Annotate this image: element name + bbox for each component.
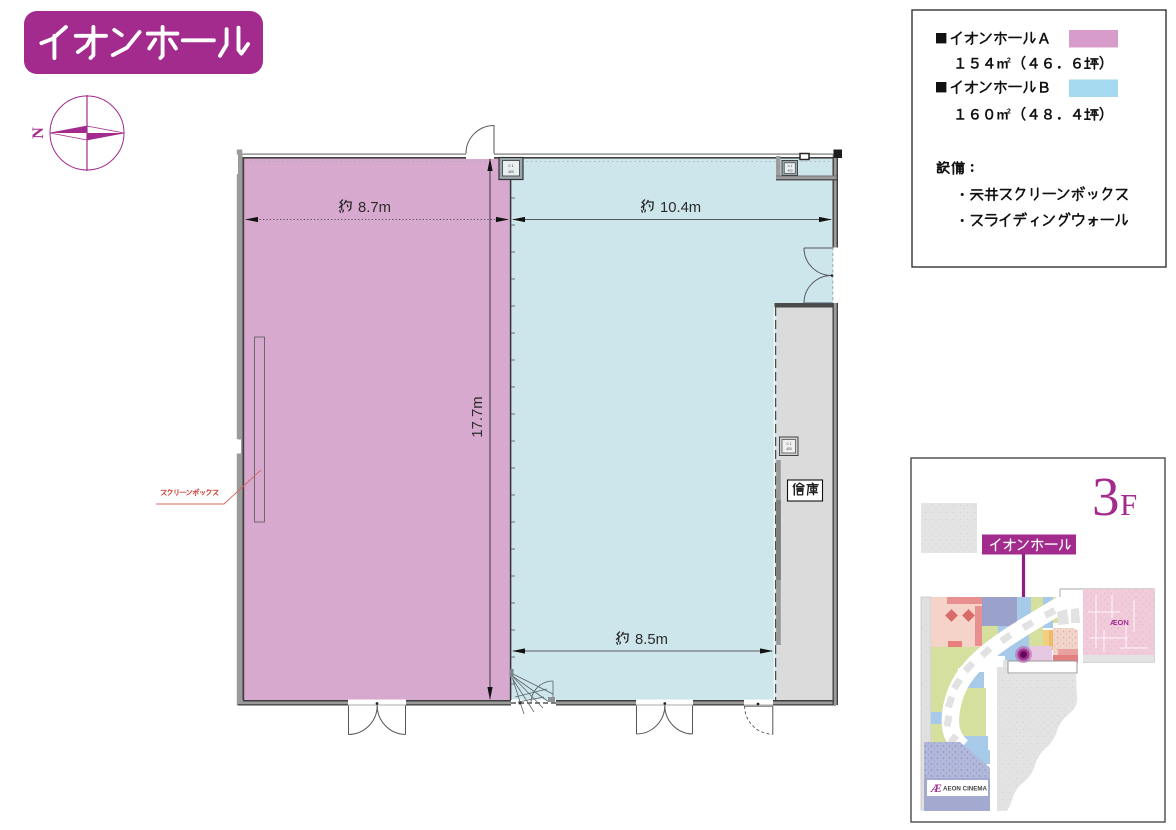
svg-text:8.7m: 8.7m <box>358 200 391 216</box>
svg-text:2: 2 <box>1007 108 1011 116</box>
svg-text:６: ６ <box>968 108 982 124</box>
svg-text:N: N <box>30 127 47 139</box>
svg-text:１: １ <box>953 108 967 124</box>
svg-text:４: ４ <box>1026 108 1040 124</box>
svg-text:６: ６ <box>1070 57 1084 73</box>
svg-text:C 1: C 1 <box>788 164 793 168</box>
svg-text:10.4m: 10.4m <box>660 200 701 216</box>
svg-text:Æ: Æ <box>930 783 942 795</box>
svg-text:C 1: C 1 <box>508 164 514 168</box>
svg-text:3: 3 <box>1092 466 1120 527</box>
svg-text:ÆON: ÆON <box>1110 618 1129 627</box>
svg-text:（: （ <box>1012 57 1026 73</box>
svg-text:（: （ <box>1012 108 1026 124</box>
svg-text:６: ６ <box>1041 57 1055 73</box>
svg-text:４: ４ <box>1070 108 1084 124</box>
svg-text:C 1: C 1 <box>787 442 792 446</box>
svg-text:１: １ <box>953 57 967 73</box>
svg-text:８: ８ <box>1041 108 1055 124</box>
svg-text:8.5m: 8.5m <box>635 632 668 648</box>
svg-text:Ａ: Ａ <box>1037 32 1051 48</box>
svg-text:４: ４ <box>982 57 996 73</box>
svg-text:2: 2 <box>1007 57 1011 65</box>
svg-text:４: ４ <box>1026 57 1040 73</box>
svg-text:５: ５ <box>968 57 982 73</box>
svg-text:17.7m: 17.7m <box>470 396 486 437</box>
svg-text:F: F <box>1120 487 1137 522</box>
svg-text:）: ） <box>1099 57 1113 73</box>
svg-text:AEON CINEMA: AEON CINEMA <box>943 786 988 793</box>
svg-text:０: ０ <box>982 108 996 124</box>
svg-text:400: 400 <box>508 170 514 174</box>
svg-text:Ｂ: Ｂ <box>1037 81 1051 97</box>
svg-text:400: 400 <box>787 169 792 173</box>
svg-text:400: 400 <box>786 447 792 451</box>
svg-text:）: ） <box>1099 108 1113 124</box>
